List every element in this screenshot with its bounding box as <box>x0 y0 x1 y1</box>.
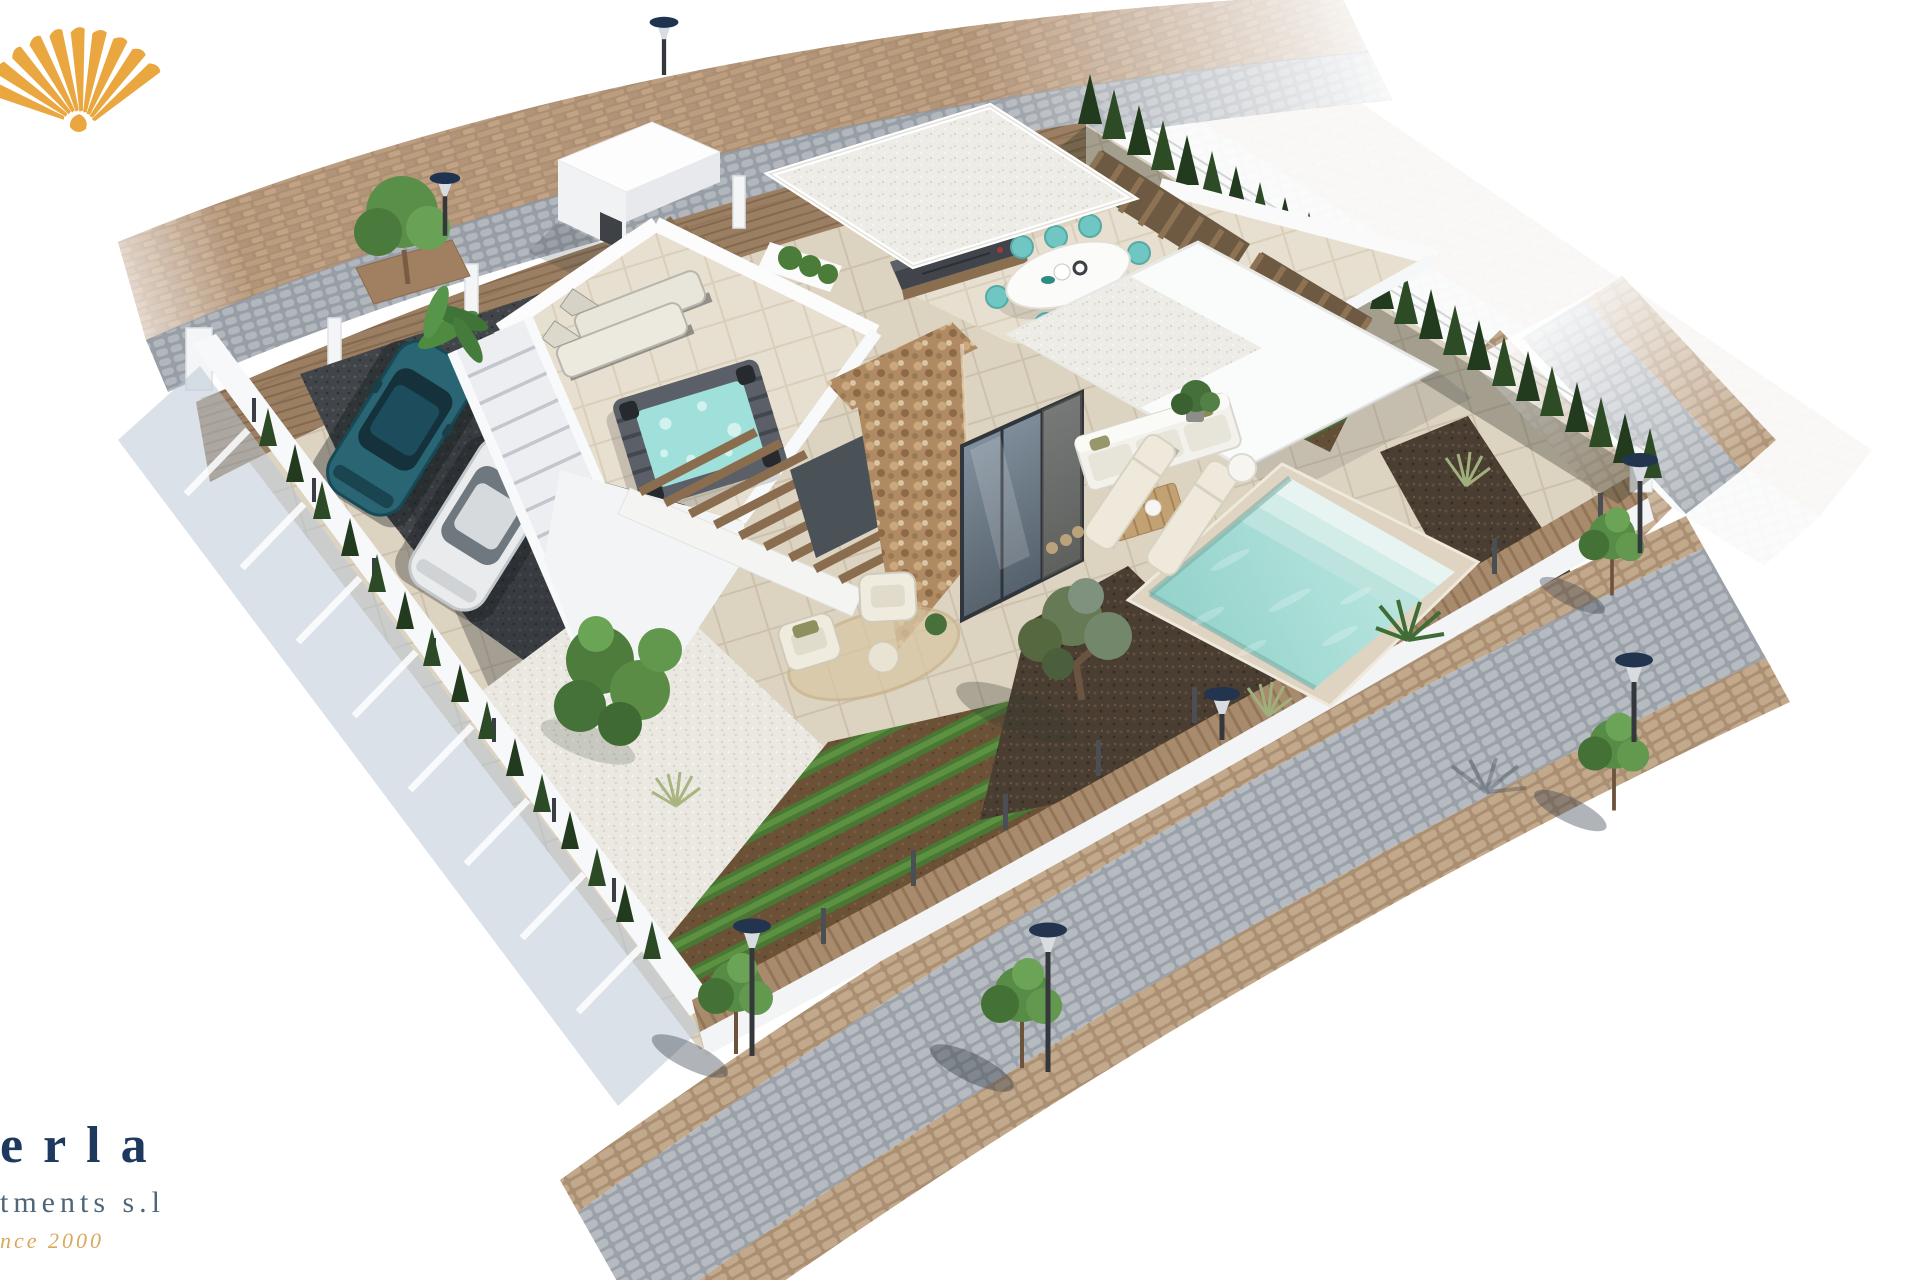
table-dish <box>1041 276 1055 284</box>
pool-side-table <box>1228 454 1256 482</box>
street-lamp <box>650 17 679 75</box>
table-bowl <box>1054 264 1070 280</box>
wicker-armchair-2 <box>859 572 917 623</box>
villa-aerial-render <box>0 0 1920 1280</box>
render-canvas: erla tments s.l nce 2000 <box>0 0 1920 1280</box>
